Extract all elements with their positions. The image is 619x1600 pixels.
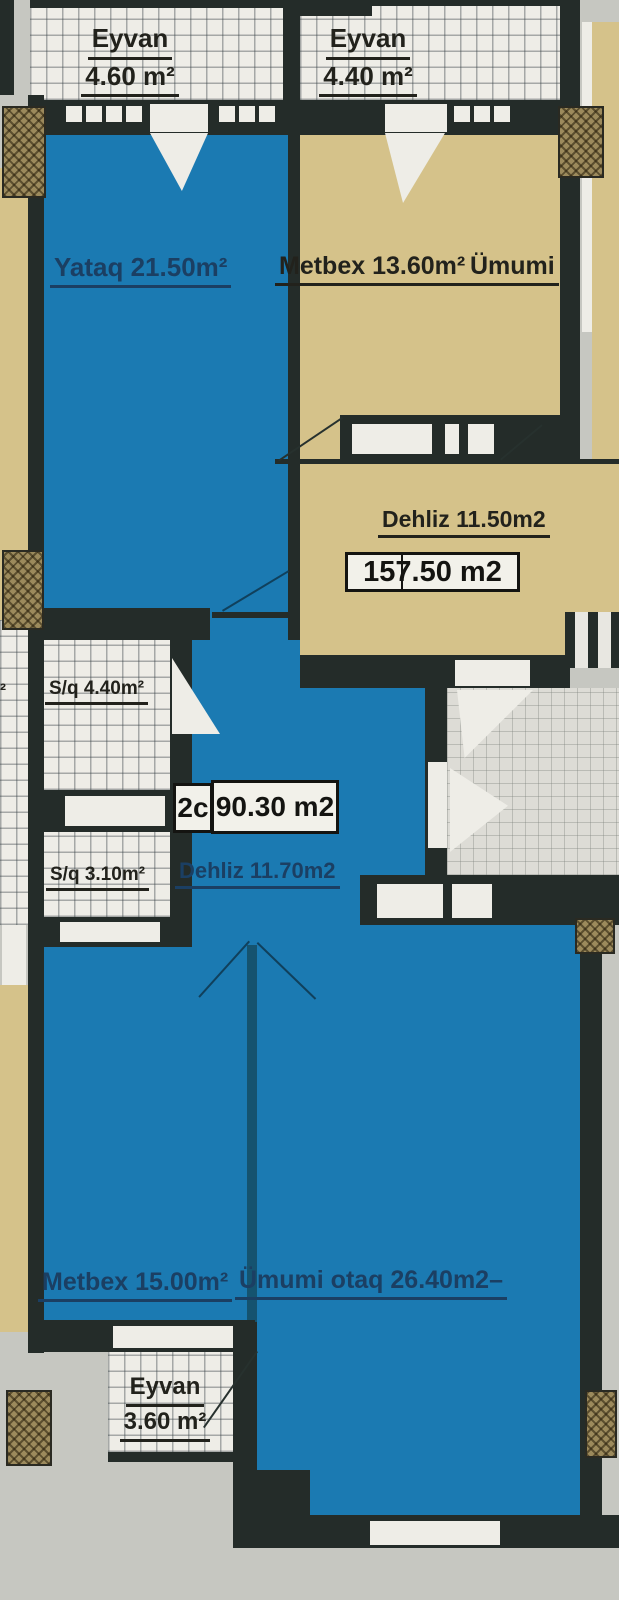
total-area-box: 157.50 m2 — [345, 552, 520, 592]
label-dehliz-lower: Dehliz 11.70m2 — [175, 858, 340, 889]
neighbor-bath-left — [0, 620, 28, 925]
window — [377, 884, 443, 918]
column — [2, 106, 46, 198]
label-neighbor-fragment-right: Ümumi — [466, 252, 619, 286]
label-sq-lower: S/q 3.10m² — [46, 864, 149, 891]
door-threshold — [212, 612, 288, 618]
room-name: Eyvan — [126, 1372, 205, 1407]
label-dehliz-upper: Dehliz 11.50m2 — [378, 506, 550, 538]
room-metbex-lower — [42, 945, 247, 1322]
label-eyvan-bottom: Eyvan 3.60 m² — [100, 1372, 230, 1442]
wall-right-upper — [560, 0, 580, 462]
room-yataq — [42, 135, 288, 618]
label-metbex-lower: Metbex 15.00m² — [38, 1268, 232, 1302]
label-eyvan-top-left: Eyvan 4.60 m² — [55, 22, 205, 97]
neighbor-window-left — [2, 925, 26, 985]
window — [215, 106, 277, 122]
box-divider — [401, 552, 403, 592]
window — [370, 1521, 500, 1545]
balcony-rail — [372, 0, 560, 6]
window — [62, 106, 142, 122]
door-opening — [385, 104, 447, 132]
wall — [300, 0, 372, 16]
wall-left — [28, 95, 44, 1353]
balcony-rail — [30, 0, 283, 8]
column — [585, 1390, 617, 1458]
column — [2, 550, 44, 630]
label-neighbor-fragment-left: ² — [0, 680, 6, 701]
wall — [0, 0, 14, 95]
wall-yataq-metbex — [288, 95, 300, 640]
unit-area-box: 90.30 m2 — [211, 780, 339, 834]
room-umumi-otaq — [247, 925, 580, 1515]
door-opening — [455, 660, 530, 686]
column — [558, 106, 604, 178]
room-area: 4.60 m² — [81, 60, 179, 98]
window-pane — [352, 424, 432, 454]
threshold-line — [275, 459, 619, 464]
wall-balcony-right — [233, 1322, 257, 1470]
unit-type-box: 2c — [173, 783, 213, 833]
label-eyvan-top-right: Eyvan 4.40 m² — [293, 22, 443, 97]
window-pane — [445, 424, 459, 454]
window-pane — [468, 424, 494, 454]
room-name: Eyvan — [326, 22, 411, 60]
door-opening — [428, 762, 447, 848]
label-metbex-upper: Metbex 13.60m² — [275, 252, 469, 286]
staircase — [565, 612, 619, 668]
neighbor-room-left-lower — [0, 985, 28, 1332]
door-opening — [65, 796, 165, 826]
label-sq-upper: S/q 4.40m² — [45, 678, 148, 705]
room-area: 4.40 m² — [319, 60, 417, 98]
label-umumi-otaq: Ümumi otaq 26.40m2– — [235, 1266, 507, 1300]
wall-yataq-bottom — [30, 608, 210, 640]
room-sq-upper — [42, 640, 170, 790]
window — [452, 884, 492, 918]
column — [6, 1390, 52, 1466]
door-opening — [150, 104, 208, 132]
balcony-door-opening — [113, 1326, 233, 1348]
room-metbex-upper — [300, 135, 560, 462]
room-area: 3.60 m² — [120, 1407, 211, 1442]
window — [450, 106, 514, 122]
column — [575, 918, 615, 954]
label-yataq: Yataq 21.50m² — [50, 252, 231, 288]
wall-corner-block — [233, 1470, 310, 1548]
door-opening — [60, 922, 160, 942]
floor-plan: Eyvan 4.60 m² Eyvan 4.40 m² Yataq 21.50m… — [0, 0, 619, 1600]
room-name: Eyvan — [88, 22, 173, 60]
balcony-rail-bottom — [108, 1452, 233, 1462]
